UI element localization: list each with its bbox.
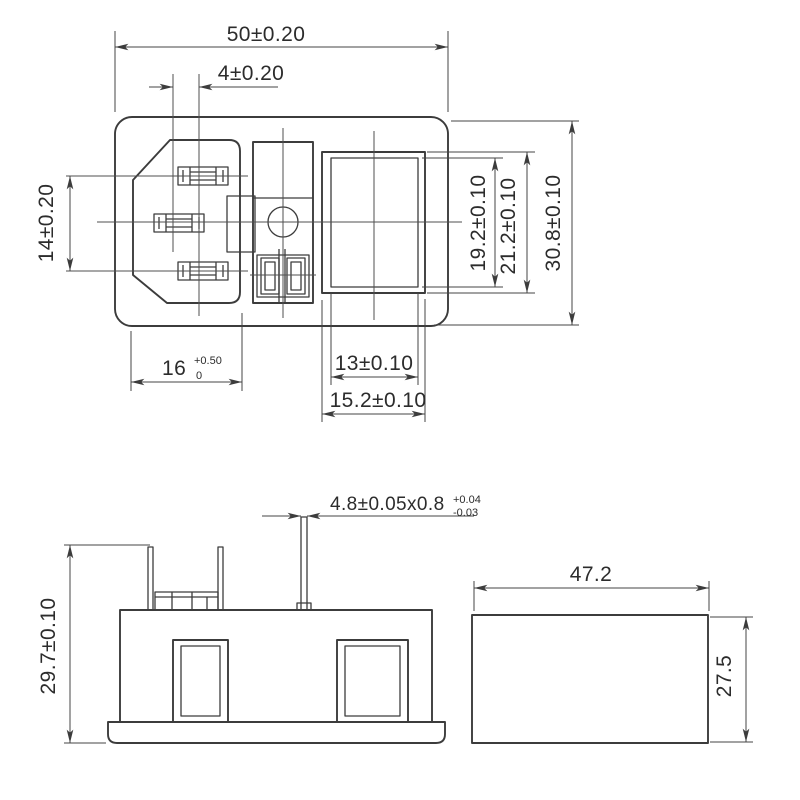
side-pin-left [148, 547, 153, 610]
side-body-outline [120, 610, 432, 722]
side-pin-middle [218, 547, 223, 610]
dim-cutout-width: 47.2 [570, 563, 612, 586]
side-view: 29.7±0.10 4.8±0.05x0.8 +0.04 -0.03 [37, 494, 481, 743]
latch-window-right [337, 640, 408, 722]
technical-drawing: 50±0.20 4±0.20 14±0.20 16 +0.50 0 13±0.1… [0, 0, 800, 800]
dim-inlet-width-upper-tol: +0.50 [194, 355, 222, 367]
dim-overall-width: 50±0.20 [227, 23, 306, 46]
dim-switch-window-height: 19.2±0.10 [467, 175, 490, 272]
dim-inlet-width-lower-tol: 0 [196, 370, 202, 382]
panel-cutout-outline [472, 615, 708, 743]
dim-inlet-width: 16 [162, 357, 186, 380]
side-view-outline [108, 517, 445, 743]
dim-terminal-offset: 4±0.20 [218, 62, 284, 85]
front-view: 50±0.20 4±0.20 14±0.20 16 +0.50 0 13±0.1… [35, 23, 579, 422]
dim-switch-frame-width: 15.2±0.10 [330, 389, 427, 412]
dim-overall-height: 30.8±0.10 [542, 175, 565, 272]
dim-terminal-upper-tol: +0.04 [453, 494, 481, 506]
dim-side-overall-height: 29.7±0.10 [37, 598, 60, 695]
dim-terminal-lower-tol: -0.03 [453, 507, 478, 519]
dim-cutout-height: 27.5 [713, 655, 736, 697]
latch-window-left [173, 640, 228, 722]
panel-cutout-view: 47.2 27.5 [472, 563, 753, 743]
side-pin-tall [297, 517, 311, 610]
dim-switch-window-width: 13±0.10 [335, 352, 414, 375]
panel-cutout-dimensions: 47.2 27.5 [474, 563, 753, 742]
side-view-dimensions: 29.7±0.10 4.8±0.05x0.8 +0.04 -0.03 [37, 494, 481, 743]
fuse-holder-tab [227, 196, 255, 252]
drawing-sheet: 50±0.20 4±0.20 14±0.20 16 +0.50 0 13±0.1… [0, 0, 800, 800]
dim-switch-frame-height: 21.2±0.10 [497, 178, 520, 275]
mounting-flange-outline [108, 722, 445, 743]
dim-terminal-cross-section: 4.8±0.05x0.8 [330, 494, 445, 515]
front-view-centerlines [66, 74, 462, 320]
terminal-block-step [155, 592, 218, 610]
inlet-pin-middle [154, 214, 204, 232]
dim-terminal-spacing: 14±0.20 [35, 184, 58, 263]
